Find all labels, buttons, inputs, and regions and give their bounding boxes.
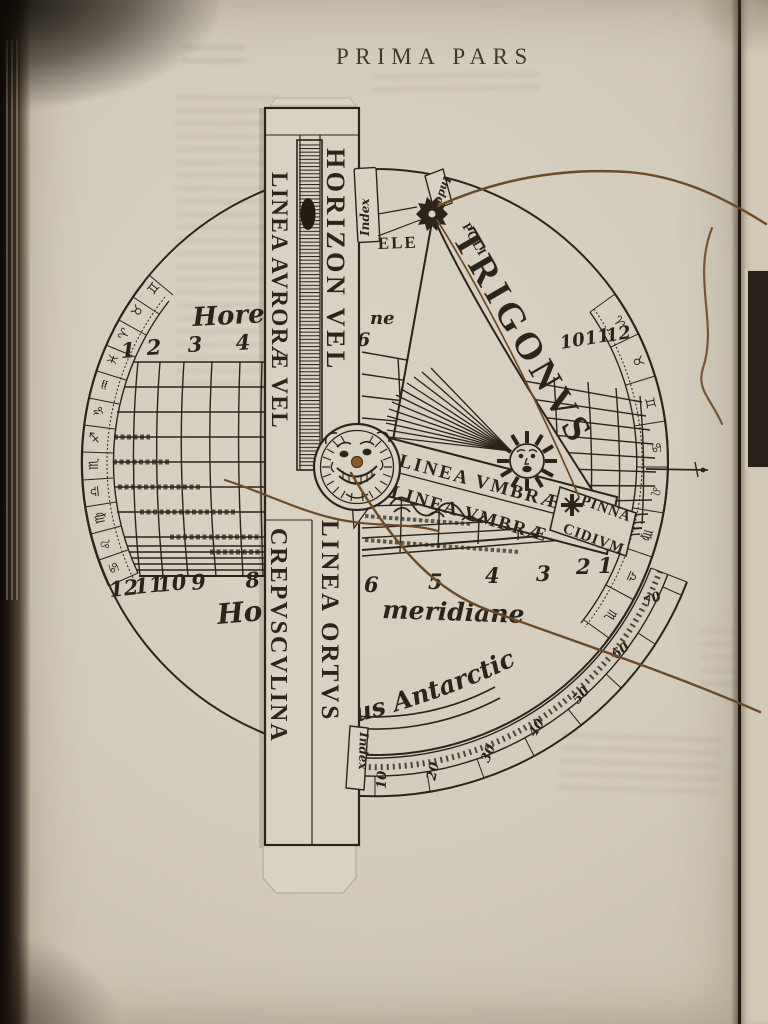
pinnacidium-vane: PINNA CIDIVM <box>550 487 636 558</box>
zodiac-glyph: ♎ <box>622 568 640 585</box>
zodiac-glyph: ♊ <box>145 280 164 298</box>
hour-label: 5 <box>428 569 443 594</box>
zodiac-glyph: ♐ <box>88 431 104 444</box>
zodiac-glyph: ♊ <box>641 396 658 411</box>
hour-label: 10 <box>156 569 188 597</box>
degree-tick-label: 50 <box>570 684 593 707</box>
hour-label: 4 <box>235 329 251 355</box>
degree-tick-label: 10 <box>375 771 391 790</box>
hour-label: 10 <box>558 329 587 354</box>
brass-pin <box>352 457 363 468</box>
hour-label: 1 <box>598 553 613 578</box>
horizon-vel-label: HORIZON VEL <box>321 148 350 372</box>
slot-scale <box>299 142 320 468</box>
zodiac-glyph: ♍ <box>638 527 656 542</box>
book-photo: PRIMA PARS <box>0 0 768 1024</box>
zodiac-glyph: ♒ <box>97 377 115 392</box>
hour-label: 8 <box>243 567 262 594</box>
zodiac-glyph: ♋ <box>648 442 664 454</box>
linea-aurorae-label: LINEA AVRORÆ VEL <box>267 172 292 429</box>
hore-meridiane-right: meridiane <box>382 595 525 629</box>
page-header: PRIMA PARS <box>336 44 534 69</box>
zodiac-glyph: ♎ <box>87 485 103 498</box>
zodiac-glyph: ♏ <box>87 458 102 470</box>
hour-label: 4 <box>485 563 500 588</box>
zodiac-glyph: ♌ <box>646 485 662 498</box>
hore-top-label: Hore <box>191 299 266 333</box>
hour-label: 6 <box>364 572 379 597</box>
hour-label: 3 <box>187 331 203 357</box>
elevation-label: ELE <box>377 233 418 253</box>
right-pointer-line <box>646 462 708 477</box>
hore-top-fragment: ne <box>370 308 395 329</box>
linea-ortus-label: LINEA ORTVS <box>316 520 343 722</box>
woodcut-instrument-diagram: PRIMA PARS <box>0 0 768 1024</box>
index-top-left-label: Index <box>358 198 372 237</box>
index-bottom-label: Index <box>356 731 371 771</box>
zodiac-glyph: ♑ <box>91 404 108 418</box>
index-tab-top-left: Index <box>354 167 380 242</box>
hour-label: 1 <box>120 337 136 363</box>
hour-label: 3 <box>536 561 551 586</box>
hour-label: 9 <box>190 569 208 595</box>
thread-right-edge <box>701 228 722 424</box>
slot-bead <box>301 198 316 230</box>
index-tab-bottom: Index <box>346 726 371 790</box>
hour-label: 2 <box>145 334 162 360</box>
thread-top <box>438 171 766 224</box>
crepusculina-label: CREPVSCVLINA <box>265 528 291 743</box>
zodiac-glyph: ♍ <box>92 510 109 525</box>
degree-tick-label: 60 <box>609 640 632 663</box>
zodiac-glyph: ♌ <box>98 536 116 552</box>
hour-label: 12 <box>604 322 632 347</box>
hour-grid-left <box>113 362 265 576</box>
degree-tick-label: 40 <box>526 716 548 739</box>
zodiac-glyph: ♏ <box>600 606 619 624</box>
zodiac-glyph: ♋ <box>106 559 124 575</box>
zodiac-glyph: ♉ <box>628 354 646 370</box>
degree-tick-label: 20 <box>424 761 443 783</box>
hour-label: 2 <box>575 554 591 579</box>
